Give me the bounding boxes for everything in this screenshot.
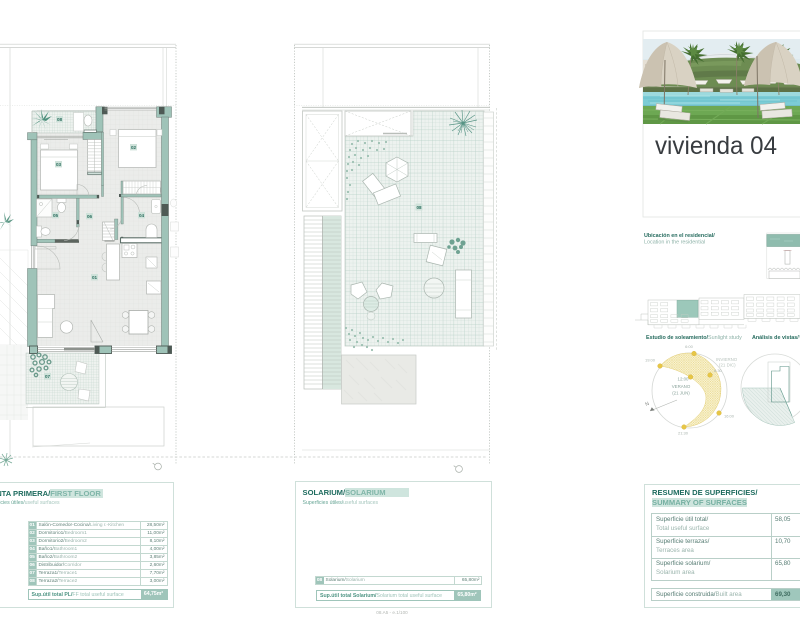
svg-text:vivienda 04: vivienda 04 <box>655 132 777 160</box>
svg-text:(21 DIC): (21 DIC) <box>719 363 736 368</box>
svg-text:08: 08 <box>416 205 422 210</box>
svg-text:05: 05 <box>53 213 59 218</box>
svg-text:03: 03 <box>56 162 62 167</box>
svg-text:Ubicación en el residencial/: Ubicación en el residencial/ <box>644 233 715 239</box>
svg-text:08: 08 <box>57 117 63 122</box>
svg-text:06: 06 <box>87 214 93 219</box>
svg-text:19:00: 19:00 <box>645 358 656 363</box>
svg-text:16:00: 16:00 <box>724 414 735 419</box>
svg-text:INVIERNO: INVIERNO <box>716 357 738 362</box>
svg-text:(21 JUN): (21 JUN) <box>672 391 690 396</box>
svg-text:Estudio de soleamiento/Sunligh: Estudio de soleamiento/Sunlight study <box>646 335 742 341</box>
svg-text:12:00: 12:00 <box>678 377 690 382</box>
svg-text:VERANO: VERANO <box>672 384 691 389</box>
svg-text:01: 01 <box>92 275 98 280</box>
svg-text:8:30: 8:30 <box>714 368 723 373</box>
svg-text:Análisis de vistas/Views: Análisis de vistas/Views <box>752 335 800 341</box>
svg-text:04: 04 <box>139 213 145 218</box>
svg-text:21:30: 21:30 <box>678 431 689 436</box>
svg-text:02: 02 <box>131 145 137 150</box>
svg-text:07: 07 <box>45 374 51 379</box>
svg-text:N: N <box>645 401 651 408</box>
svg-text:Location in the residential: Location in the residential <box>644 240 705 246</box>
svg-text:6:00: 6:00 <box>685 344 694 349</box>
